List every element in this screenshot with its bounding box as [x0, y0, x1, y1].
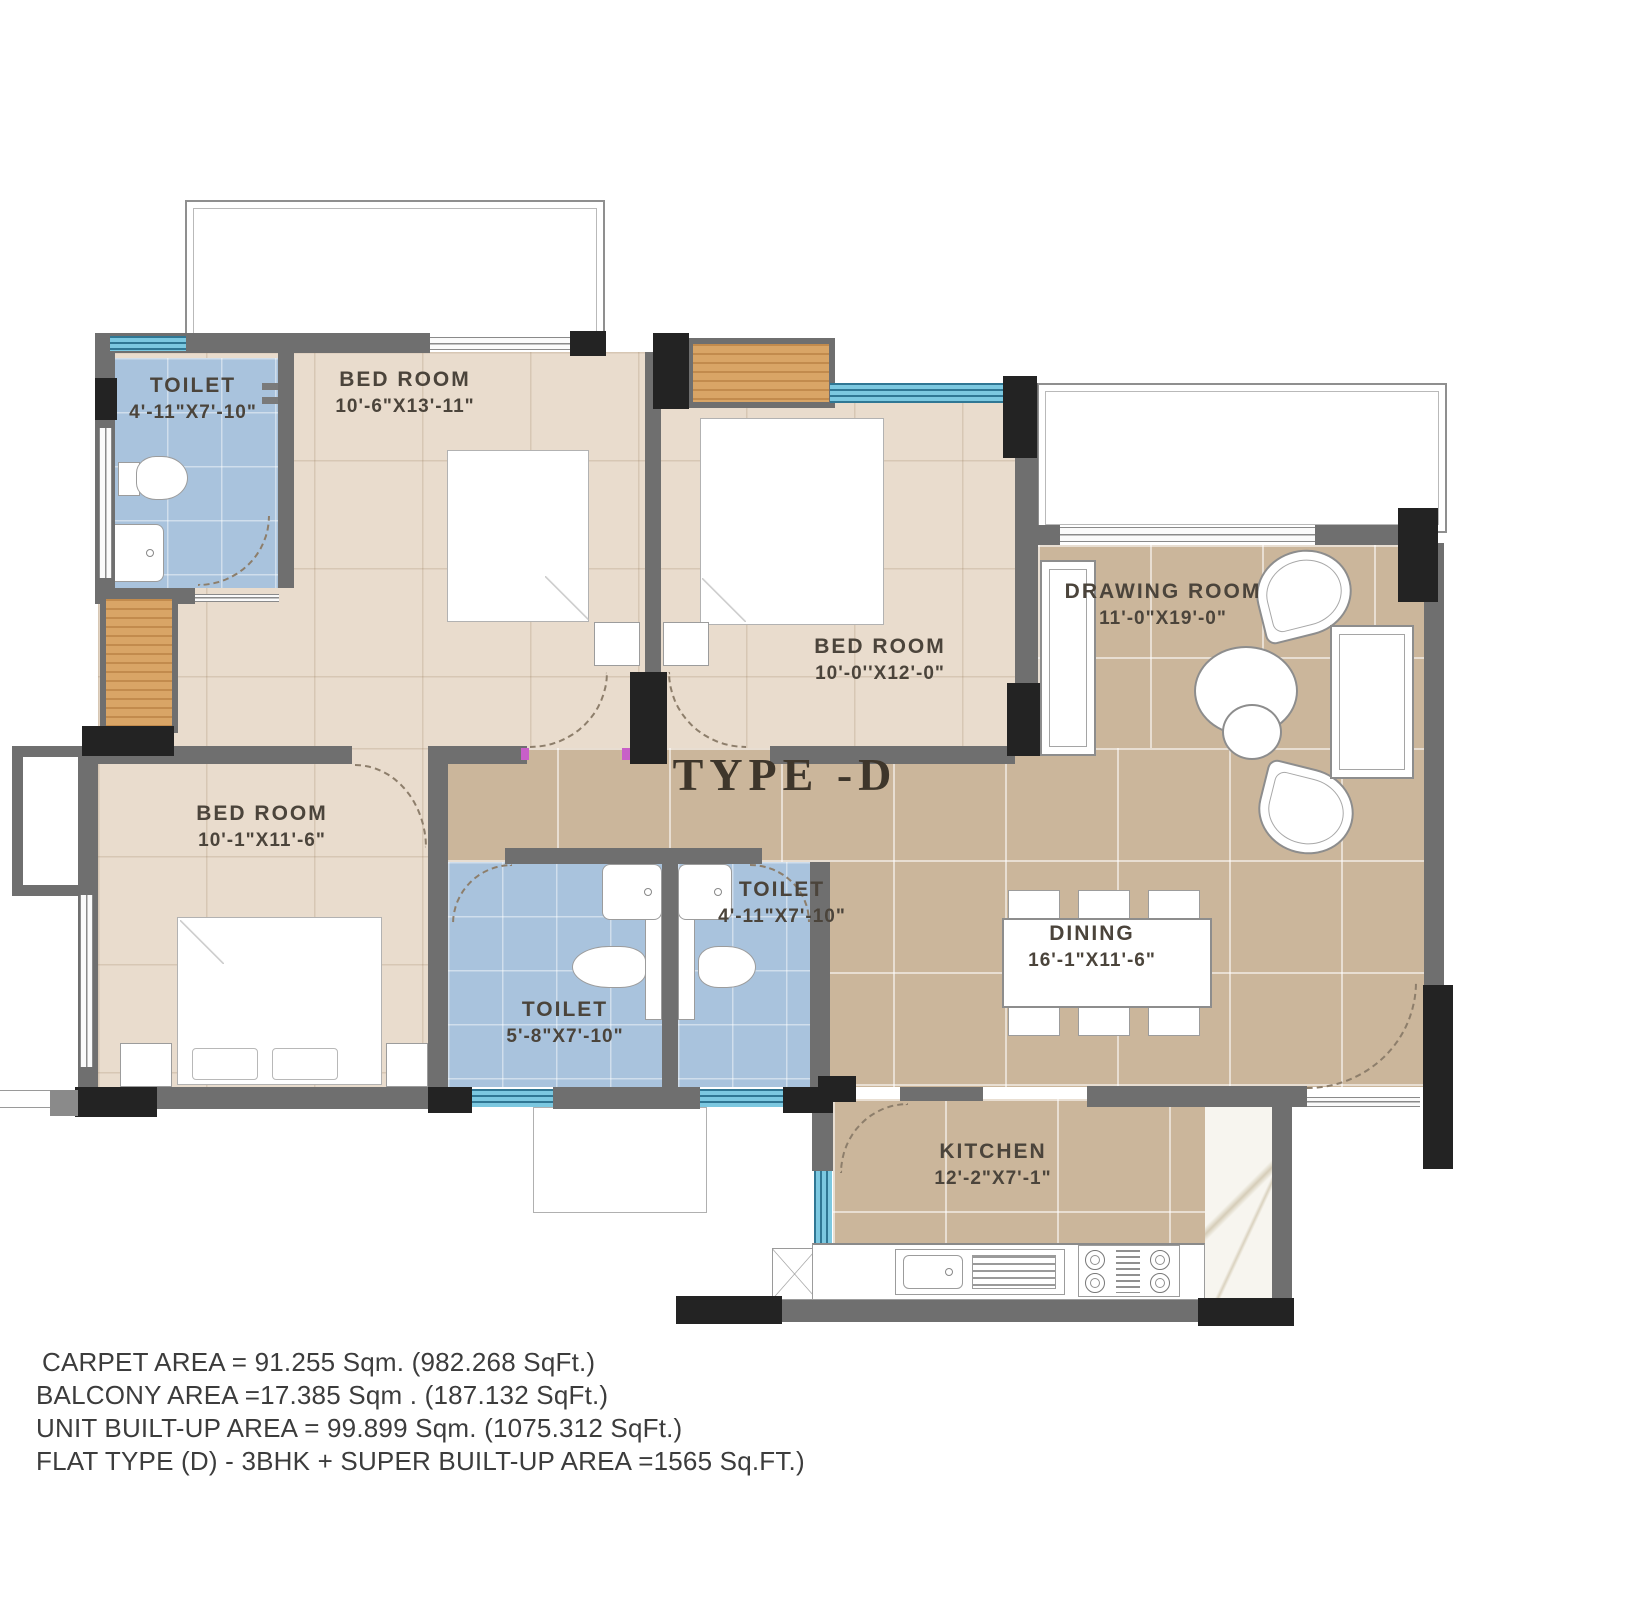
room-name: TOILET [718, 878, 846, 902]
plan-title: TYPE -D [673, 748, 898, 801]
bed-fold-line [180, 920, 224, 964]
room-dims: 4'-11"X7'-10" [129, 402, 257, 424]
wall-segment [155, 1087, 428, 1109]
wall-segment [782, 1300, 1198, 1322]
room-name: BED ROOM [814, 635, 946, 659]
window-frame [430, 337, 570, 350]
wall-stub [50, 1090, 78, 1116]
column-block [676, 1296, 782, 1324]
room-dims: 4'-11"X7'-10" [718, 906, 846, 928]
window-glass [110, 336, 186, 351]
bed-fold-line [702, 578, 746, 622]
sofa-inner [1339, 634, 1405, 770]
room-dims: 11'-0"X19'-0" [1065, 608, 1262, 630]
column-block [1003, 376, 1037, 458]
room-name: BED ROOM [196, 802, 328, 826]
room-label-toilet-mid-right: TOILET 4'-11"X7'-10" [718, 878, 846, 928]
column-block [428, 1087, 472, 1113]
wc-toilet [572, 946, 646, 988]
kitchen-sink [903, 1255, 963, 1289]
sofa [1330, 625, 1414, 779]
burner [1150, 1250, 1170, 1270]
room-label-bedroom-top: BED ROOM 10'-6"X13'-11" [335, 368, 474, 418]
room-label-bedroom-mid: BED ROOM 10'-0''X12'-0" [814, 635, 946, 685]
bedside-table [386, 1043, 428, 1087]
stat-balcony-area: BALCONY AREA =17.385 Sqm . (187.132 SqFt… [36, 1379, 805, 1412]
column-block [1423, 985, 1453, 1169]
room-label-kitchen: KITCHEN 12'-2"X7'-1" [934, 1140, 1051, 1190]
room-name: BED ROOM [335, 368, 474, 392]
column-block [1198, 1298, 1294, 1326]
wc-toilet [698, 946, 756, 988]
stove-grill [1116, 1250, 1140, 1293]
column-block [82, 726, 174, 756]
burner [1085, 1273, 1105, 1293]
side-table-round [1222, 704, 1282, 760]
window-glass [814, 1171, 832, 1243]
bedside-table [594, 622, 640, 666]
plumbing-chase [645, 912, 662, 1020]
wall-segment [1036, 525, 1060, 545]
wall-segment [1087, 1086, 1307, 1107]
room-dims: 16'-1"X11'-6" [1028, 950, 1156, 972]
wall-segment [1272, 1107, 1292, 1300]
burner [1150, 1273, 1170, 1293]
window-glass [830, 383, 1015, 403]
pillow [272, 1048, 338, 1080]
room-label-bedroom-left: BED ROOM 10'-1"X11'-6" [196, 802, 328, 852]
wc-toilet [136, 456, 188, 500]
room-name: KITCHEN [934, 1140, 1051, 1164]
room-name: TOILET [506, 998, 623, 1022]
column-block [75, 1087, 157, 1117]
room-name: DINING [1028, 922, 1156, 946]
window-glass [470, 1089, 553, 1107]
area-statistics: CARPET AREA = 91.255 Sqm. (982.268 SqFt.… [36, 1346, 805, 1478]
burner [1085, 1250, 1105, 1270]
stat-carpet-area: CARPET AREA = 91.255 Sqm. (982.268 SqFt.… [36, 1346, 805, 1379]
wall-segment [428, 746, 448, 1087]
column-block [1007, 683, 1040, 756]
wall-segment [278, 333, 430, 353]
room-dims: 5'-8"X7'-10" [506, 1026, 623, 1048]
room-name: DRAWING ROOM [1065, 580, 1262, 604]
floor-notch-cover [830, 352, 1015, 385]
entry-threshold [1307, 1097, 1420, 1107]
room-dims: 10'-1"X11'-6" [196, 830, 328, 852]
room-label-drawing: DRAWING ROOM 11'-0"X19'-0" [1065, 580, 1262, 630]
column-block [95, 378, 117, 420]
wall-segment [662, 848, 678, 1087]
door-threshold [195, 594, 279, 602]
towel-rail [262, 383, 279, 390]
column-block [630, 672, 667, 764]
towel-rail [262, 397, 279, 404]
washbasin [602, 864, 662, 920]
bedside-table [120, 1043, 172, 1087]
wall-segment [505, 848, 762, 864]
pillow [192, 1048, 258, 1080]
wall-segment [1424, 543, 1444, 985]
bed-fold-line [545, 576, 589, 620]
room-label-dining: DINING 16'-1"X11'-6" [1028, 922, 1156, 972]
stat-built-up-area: UNIT BUILT-UP AREA = 99.899 Sqm. (1075.3… [36, 1412, 805, 1445]
stat-flat-type: FLAT TYPE (D) - 3BHK + SUPER BUILT-UP AR… [36, 1445, 805, 1478]
wardrobe [687, 338, 835, 408]
room-dims: 10'-0''X12'-0" [814, 663, 946, 685]
window-frame [99, 428, 112, 578]
window-frame [1060, 527, 1315, 542]
drainboard [972, 1255, 1056, 1289]
room-dims: 10'-6"X13'-11" [335, 396, 474, 418]
floor-plan: TOILET 4'-11"X7'-10" BED ROOM 10'-6"X13'… [0, 0, 1634, 1605]
wall-segment [553, 1087, 700, 1109]
room-name: TOILET [129, 374, 257, 398]
bedside-table [663, 622, 709, 666]
column-block [818, 1076, 856, 1102]
floor-utility-marble [1205, 1107, 1272, 1300]
wardrobe [100, 593, 178, 733]
wall-segment [278, 352, 294, 588]
column-block [570, 331, 606, 356]
balcony-top-left [185, 200, 605, 348]
wall-segment [900, 1087, 983, 1101]
room-label-toilet-mid-left: TOILET 5'-8"X7'-10" [506, 998, 623, 1048]
door-hinge-marker [521, 748, 529, 760]
column-block [653, 333, 689, 409]
window-frame [80, 895, 93, 1067]
room-dims: 12'-2"X7'-1" [934, 1168, 1051, 1190]
door-hinge-marker [622, 748, 630, 760]
window-glass [700, 1089, 783, 1107]
balcony-top-right [1037, 383, 1447, 533]
duct-below-toilets [533, 1107, 707, 1213]
plumbing-chase [678, 912, 695, 1020]
room-label-toilet-top: TOILET 4'-11"X7'-10" [129, 374, 257, 424]
column-block [1398, 508, 1438, 602]
